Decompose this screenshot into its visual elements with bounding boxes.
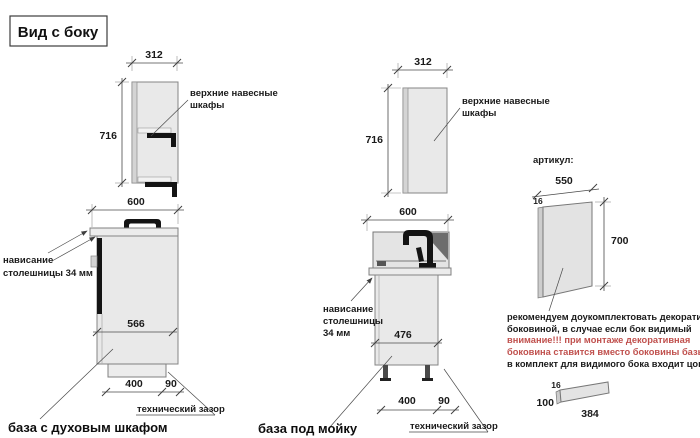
leg-icon <box>383 365 388 378</box>
oven-base-caption: база с духовым шкафом <box>8 420 168 435</box>
overhang-label-line1: нависание <box>3 255 53 266</box>
sink-base-width-dim: 600 <box>399 206 417 218</box>
plinth-strip <box>560 382 609 402</box>
sink-gap-dim: 90 <box>438 395 450 407</box>
oven-base-drawing: 600 566 400 90 нависание столешницы 34 м… <box>3 196 225 435</box>
overhang-label-line2: столешницы <box>323 316 383 327</box>
cabinet-side-face <box>132 82 137 183</box>
decorative-panel <box>543 202 592 297</box>
title-box: Вид с боку <box>10 16 107 46</box>
overhang-label-line2: столешницы 34 мм <box>3 268 93 279</box>
oven-base-body <box>97 236 178 364</box>
sink-base-inner-dim: 476 <box>394 329 412 341</box>
upper-cabinets-label-line2: шкафы <box>190 100 224 111</box>
oven-base-width-dim: 600 <box>127 196 145 208</box>
tech-gap-label-middle: технический зазор <box>410 421 498 432</box>
left-wall-cabinet-drawing: 312 716 верхние навесные шкафы <box>99 49 277 197</box>
panel-height-dim: 700 <box>611 235 629 247</box>
bottom-bracket-icon <box>145 182 177 197</box>
oven-door-edge <box>97 238 102 314</box>
overhang-label-line3: 34 мм <box>323 328 350 339</box>
countertop <box>90 228 178 236</box>
upper-cabinets-label-line1: верхние навесные <box>190 88 278 99</box>
faucet-base <box>419 263 436 268</box>
note-warning-line1: внимание!!! при монтаже декоративная <box>507 335 690 345</box>
note-line2: боковиной, в случае если бок видимый <box>507 324 692 334</box>
note-warning-line2: боковина ставится вместо боковины базы л… <box>507 347 700 357</box>
oven-handle-icon <box>124 219 161 228</box>
plinth-thickness-dim: 16 <box>551 380 561 390</box>
note-line1: рекомендуем доукомплектовать декоративно… <box>507 312 700 322</box>
oven-base-inner-dim: 566 <box>127 318 145 330</box>
cabinet-side-face <box>403 88 408 193</box>
countertop <box>369 268 451 275</box>
tech-gap-label-left: технический зазор <box>137 404 225 415</box>
bottom-shelf <box>138 177 171 182</box>
sink-drain <box>377 261 386 266</box>
plinth <box>108 364 166 377</box>
overhang-label-line1: нависание <box>323 304 373 315</box>
panel-edge-face <box>538 207 543 298</box>
plinth-length-dim: 384 <box>581 408 599 420</box>
oven-gap-dim: 90 <box>165 378 177 390</box>
left-wall-height-dim: 716 <box>99 130 117 142</box>
side-view-drawing: Вид с боку 312 716 верхние навесные шкаф… <box>0 0 700 438</box>
leg-icon <box>425 365 430 378</box>
sink-base-drawing: 600 476 400 90 нависание столешницы 34 м… <box>258 206 498 436</box>
panel-width-dim: 550 <box>555 175 573 187</box>
artikul-label: артикул: <box>533 155 574 166</box>
middle-wall-cabinet-drawing: 312 716 верхние навесные шкафы <box>365 56 549 197</box>
leg-foot <box>422 378 433 381</box>
technical-drawing-page: Вид с боку 312 716 верхние навесные шкаф… <box>0 0 700 438</box>
left-wall-width-dim: 312 <box>145 49 163 61</box>
page-title: Вид с боку <box>18 24 99 41</box>
oven-plinth-dim: 400 <box>125 378 143 390</box>
upper-cabinets-label-line2: шкафы <box>462 108 496 119</box>
mid-wall-height-dim: 716 <box>365 134 383 146</box>
mid-wall-width-dim: 312 <box>414 56 432 68</box>
leg-foot <box>380 378 391 381</box>
sink-base-caption: база под мойку <box>258 421 358 436</box>
sink-plinth-dim: 400 <box>398 395 416 407</box>
plinth-height-dim: 100 <box>536 397 554 409</box>
panel-thickness-dim: 16 <box>533 196 543 206</box>
decorative-panel-drawing: артикул: 550 16 700 рекомендуем доукомпл… <box>507 155 700 420</box>
note-line3: в комплект для видимого бока входит цоко… <box>507 359 700 369</box>
sink-base-body <box>375 275 438 365</box>
oven-door-handle <box>91 256 97 267</box>
upper-cabinets-label-line1: верхние навесные <box>462 96 550 107</box>
